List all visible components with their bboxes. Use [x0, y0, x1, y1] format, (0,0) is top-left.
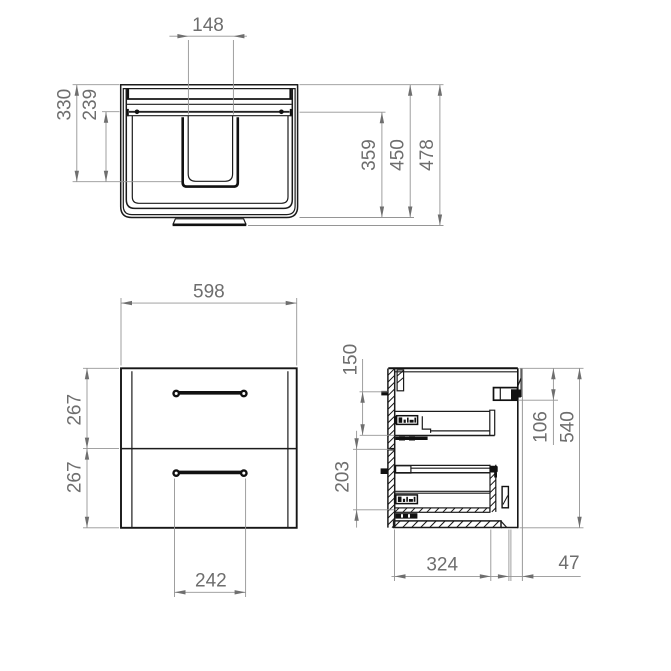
- svg-text:359: 359: [359, 139, 380, 171]
- svg-text:267: 267: [65, 394, 86, 426]
- svg-text:203: 203: [333, 461, 354, 493]
- svg-text:598: 598: [193, 282, 225, 303]
- svg-text:239: 239: [80, 89, 101, 121]
- svg-text:450: 450: [387, 139, 408, 171]
- svg-text:540: 540: [558, 411, 579, 443]
- svg-text:330: 330: [54, 89, 75, 121]
- svg-text:106: 106: [530, 411, 551, 443]
- svg-text:47: 47: [558, 553, 579, 574]
- svg-text:148: 148: [192, 15, 224, 36]
- svg-text:242: 242: [195, 570, 227, 591]
- svg-text:267: 267: [65, 461, 86, 493]
- svg-text:324: 324: [426, 554, 458, 575]
- svg-text:150: 150: [341, 344, 362, 376]
- svg-text:478: 478: [417, 139, 438, 171]
